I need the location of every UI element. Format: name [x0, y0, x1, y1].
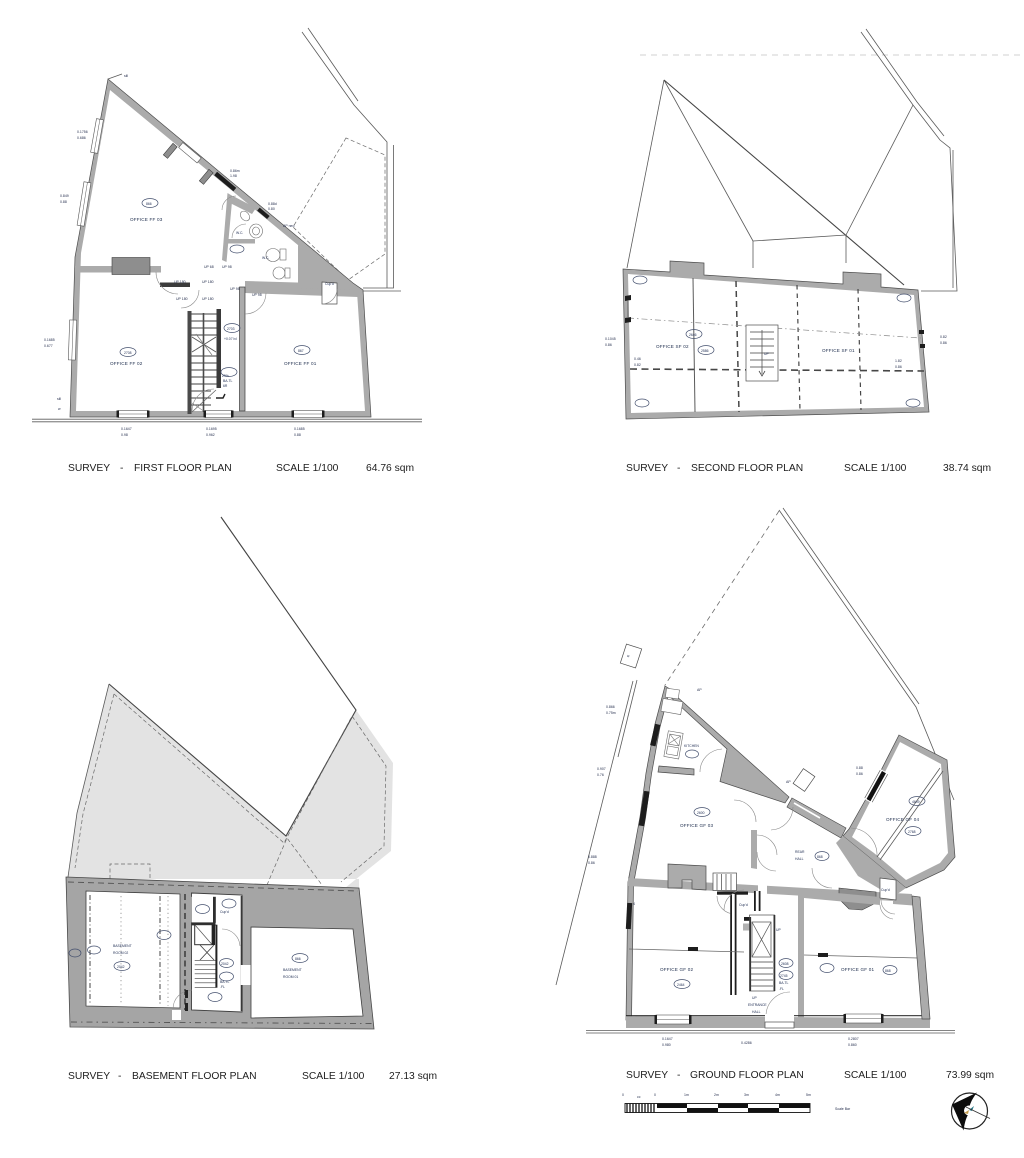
svg-text:.FL: .FL — [779, 987, 784, 991]
svg-text:HALL: HALL — [752, 1010, 761, 1014]
svg-text:2646: 2646 — [689, 333, 697, 337]
svg-text:SURVEY: SURVEY — [68, 1071, 110, 1082]
svg-text:ENTRANCE: ENTRANCE — [748, 1003, 767, 1007]
svg-text:0.1647: 0.1647 — [662, 1037, 673, 1041]
svg-text:73.99 sqm: 73.99 sqm — [946, 1070, 994, 1081]
svg-text:0.98: 0.98 — [121, 433, 128, 437]
svg-text:0.2807: 0.2807 — [848, 1037, 859, 1041]
svg-text:0.849: 0.849 — [60, 194, 69, 198]
svg-text:2768: 2768 — [908, 830, 916, 834]
svg-text:Cup'd: Cup'd — [739, 903, 748, 907]
svg-text:OFFICE GF 02: OFFICE GF 02 — [660, 967, 694, 972]
svg-text:HALL: HALL — [795, 857, 804, 861]
svg-text:SECOND FLOOR PLAN: SECOND FLOOR PLAN — [691, 463, 803, 474]
svg-text:SCALE 1/100: SCALE 1/100 — [844, 463, 907, 474]
svg-text:GROUND FLOOR PLAN: GROUND FLOOR PLAN — [690, 1070, 804, 1081]
svg-text:0.82: 0.82 — [634, 363, 641, 367]
svg-text:0: 0 — [654, 1093, 656, 1097]
svg-text:6R: 6R — [223, 384, 228, 388]
svg-text:0.88d: 0.88d — [268, 202, 277, 206]
svg-text:0.88: 0.88 — [856, 766, 863, 770]
svg-text:UP: UP — [776, 928, 781, 932]
svg-text:0.86: 0.86 — [940, 341, 947, 345]
svg-text:2703: 2703 — [227, 327, 235, 331]
svg-text:SURVEY: SURVEY — [68, 463, 110, 474]
svg-text:SURVEY: SURVEY — [626, 1070, 668, 1081]
svg-text:BA.TL: BA.TL — [779, 981, 789, 985]
svg-text:ROOM 01: ROOM 01 — [283, 975, 298, 979]
svg-text:UP 180: UP 180 — [174, 280, 186, 284]
svg-text:0.86: 0.86 — [588, 861, 595, 865]
svg-text:FIRST FLOOR PLAN: FIRST FLOOR PLAN — [134, 463, 232, 474]
svg-text:0: 0 — [622, 1093, 624, 1097]
svg-text:2464: 2464 — [677, 983, 685, 987]
svg-text:UP 180: UP 180 — [202, 297, 214, 301]
svg-text:sill: sill — [57, 397, 61, 401]
svg-text:OFFICE FF 02: OFFICE FF 02 — [110, 361, 143, 366]
svg-text:0.76: 0.76 — [597, 773, 604, 777]
svg-text:UP 98: UP 98 — [222, 265, 232, 269]
svg-text:868: 868 — [817, 855, 823, 859]
svg-text:2600: 2600 — [697, 811, 705, 815]
svg-text:0.980: 0.980 — [662, 1043, 671, 1047]
svg-text:2708: 2708 — [124, 351, 132, 355]
svg-text:0.75m: 0.75m — [606, 711, 616, 715]
svg-text:UP: UP — [764, 352, 769, 356]
svg-text:OFFICE GF 04: OFFICE GF 04 — [886, 817, 920, 822]
svg-text:OFFICE SF 02: OFFICE SF 02 — [656, 344, 689, 349]
svg-text:0.962: 0.962 — [206, 433, 215, 437]
svg-text:29%: 29% — [222, 374, 229, 378]
svg-text:0.860: 0.860 — [848, 1043, 857, 1047]
svg-text:0.86: 0.86 — [605, 343, 612, 347]
svg-text:BASEMENT: BASEMENT — [283, 968, 302, 972]
svg-text:5m: 5m — [806, 1093, 811, 1097]
svg-text:0.1685: 0.1685 — [44, 338, 55, 342]
svg-text:UP: UP — [752, 996, 757, 1000]
svg-text:0.1756: 0.1756 — [77, 130, 88, 134]
svg-text:64.76 sqm: 64.76 sqm — [366, 463, 414, 474]
svg-text:w: w — [58, 407, 61, 411]
svg-text:866: 866 — [295, 957, 301, 961]
svg-text:BASEMENT: BASEMENT — [113, 944, 132, 948]
svg-text:1.82: 1.82 — [895, 359, 902, 363]
svg-text:2745: 2745 — [780, 974, 788, 978]
svg-text:0.88: 0.88 — [60, 200, 67, 204]
svg-text:BA.TL: BA.TL — [220, 980, 230, 984]
svg-text:OFFICE FF 03: OFFICE FF 03 — [130, 217, 163, 222]
svg-text:0.46: 0.46 — [634, 357, 641, 361]
svg-text:UP 68: UP 68 — [204, 265, 214, 269]
svg-text:0.86: 0.86 — [856, 772, 863, 776]
svg-text:sill: sill — [124, 74, 128, 78]
svg-text:0.686: 0.686 — [77, 136, 86, 140]
svg-text:0.86: 0.86 — [895, 365, 902, 369]
svg-text:-: - — [118, 1071, 121, 1082]
svg-text:OFFICE GF 01: OFFICE GF 01 — [841, 967, 875, 972]
svg-text:-: - — [677, 1070, 680, 1081]
svg-text:W.C.: W.C. — [236, 231, 243, 235]
svg-text:AP: AP — [786, 780, 791, 784]
svg-text:BASEMENT FLOOR PLAN: BASEMENT FLOOR PLAN — [132, 1071, 257, 1082]
svg-text:UP 98: UP 98 — [252, 293, 262, 297]
svg-text:-: - — [677, 463, 680, 474]
svg-text:0.86m: 0.86m — [230, 169, 240, 173]
svg-text:0.1045: 0.1045 — [605, 337, 616, 341]
svg-text:AP: AP — [697, 688, 702, 692]
svg-text:3m: 3m — [744, 1093, 749, 1097]
svg-text:2608: 2608 — [781, 962, 789, 966]
svg-text:38.74 sqm: 38.74 sqm — [943, 463, 991, 474]
svg-text:UP 98: UP 98 — [230, 287, 240, 291]
svg-text:4649: 4649 — [912, 800, 920, 804]
svg-text:OFFICE GF 03: OFFICE GF 03 — [680, 823, 714, 828]
svg-text:SCALE 1/100: SCALE 1/100 — [302, 1071, 365, 1082]
svg-text:0.88: 0.88 — [294, 433, 301, 437]
svg-text:OFFICE SF 01: OFFICE SF 01 — [822, 348, 855, 353]
svg-text:.FL: .FL — [220, 985, 225, 989]
svg-text:AP ned: AP ned — [283, 224, 294, 228]
svg-text:0.677: 0.677 — [44, 344, 53, 348]
svg-text:1m: 1m — [684, 1093, 689, 1097]
svg-text:4m: 4m — [775, 1093, 780, 1097]
svg-text:2m: 2m — [714, 1093, 719, 1097]
svg-text:0.4286: 0.4286 — [741, 1041, 752, 1045]
svg-text:+0.07 lvl: +0.07 lvl — [224, 337, 237, 341]
svg-text:Cup'd: Cup'd — [325, 282, 334, 286]
svg-text:KITCHEN: KITCHEN — [684, 744, 699, 748]
svg-text:867: 867 — [298, 349, 304, 353]
svg-text:0.866: 0.866 — [606, 705, 615, 709]
svg-text:-: - — [120, 463, 123, 474]
svg-text:27.13 sqm: 27.13 sqm — [389, 1071, 437, 1082]
svg-text:W.C.: W.C. — [262, 256, 269, 260]
svg-text:BA.TL: BA.TL — [223, 379, 233, 383]
svg-text:OFFICE FF 01: OFFICE FF 01 — [284, 361, 317, 366]
svg-text:Cup'd: Cup'd — [881, 888, 890, 892]
svg-text:UP 180: UP 180 — [176, 297, 188, 301]
svg-text:0.1695: 0.1695 — [206, 427, 217, 431]
svg-text:0.1685: 0.1685 — [294, 427, 305, 431]
svg-text:Scale Bar: Scale Bar — [835, 1107, 851, 1111]
svg-text:0.82: 0.82 — [940, 335, 947, 339]
svg-text:cc: cc — [637, 1095, 641, 1099]
svg-text:SCALE 1/100: SCALE 1/100 — [844, 1070, 907, 1081]
svg-text:0.80: 0.80 — [268, 207, 275, 211]
svg-text:866: 866 — [146, 202, 152, 206]
svg-text:SURVEY: SURVEY — [626, 463, 668, 474]
svg-text:868: 868 — [885, 969, 891, 973]
svg-text:0.1647: 0.1647 — [121, 427, 132, 431]
svg-text:2042: 2042 — [117, 965, 125, 969]
svg-text:UP 180: UP 180 — [202, 280, 214, 284]
svg-text:0.888: 0.888 — [588, 855, 597, 859]
svg-text:REAR: REAR — [795, 850, 805, 854]
svg-text:4: 4 — [633, 902, 635, 906]
svg-text:ROOM 02: ROOM 02 — [113, 951, 128, 955]
svg-text:2586: 2586 — [701, 349, 709, 353]
svg-text:0.907: 0.907 — [597, 767, 606, 771]
svg-text:SCALE 1/100: SCALE 1/100 — [276, 463, 339, 474]
svg-text:Cup'd: Cup'd — [220, 910, 229, 914]
svg-text:2042: 2042 — [221, 962, 229, 966]
svg-text:1.98: 1.98 — [230, 174, 237, 178]
